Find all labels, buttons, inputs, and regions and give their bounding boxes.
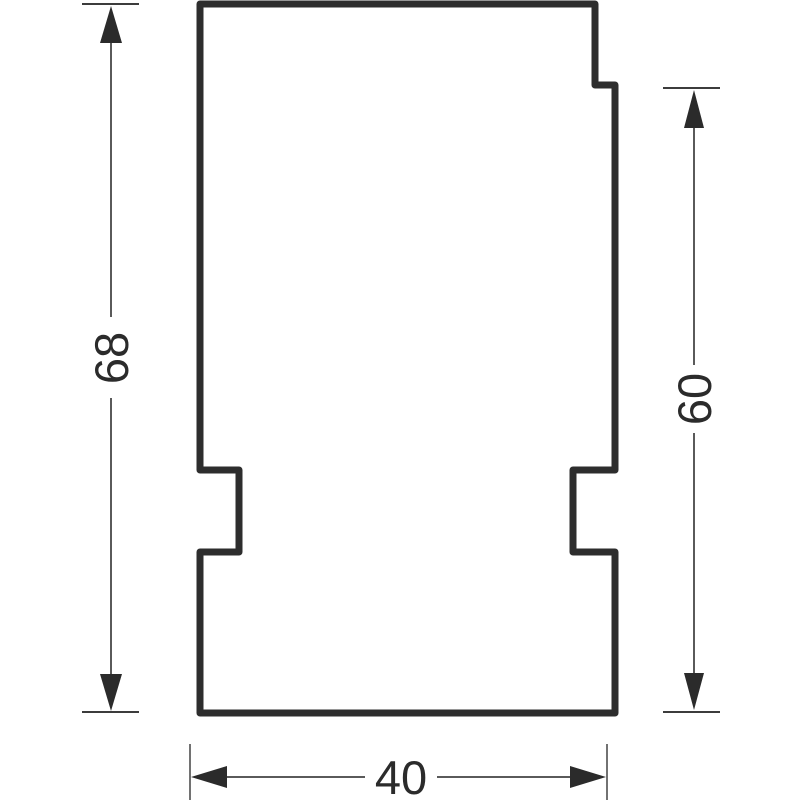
dimension-label-total-height: 68 bbox=[85, 332, 138, 384]
arrowhead-up-left bbox=[100, 6, 122, 43]
arrowhead-up-right bbox=[684, 90, 704, 128]
dimension-width: 40 bbox=[190, 744, 607, 800]
dimension-step-height: 60 bbox=[663, 88, 721, 712]
arrowhead-right bbox=[570, 766, 606, 788]
dimension-label-width: 40 bbox=[375, 751, 427, 800]
dimension-label-step-height: 60 bbox=[668, 373, 721, 425]
part-outline bbox=[200, 4, 615, 713]
drawing-canvas: 68 60 40 bbox=[0, 0, 800, 800]
arrowhead-down-left bbox=[100, 674, 122, 711]
dimension-total-height: 68 bbox=[82, 4, 139, 712]
technical-drawing: 68 60 40 bbox=[0, 0, 800, 800]
arrowhead-down-right bbox=[684, 673, 704, 710]
arrowhead-left bbox=[191, 766, 227, 788]
